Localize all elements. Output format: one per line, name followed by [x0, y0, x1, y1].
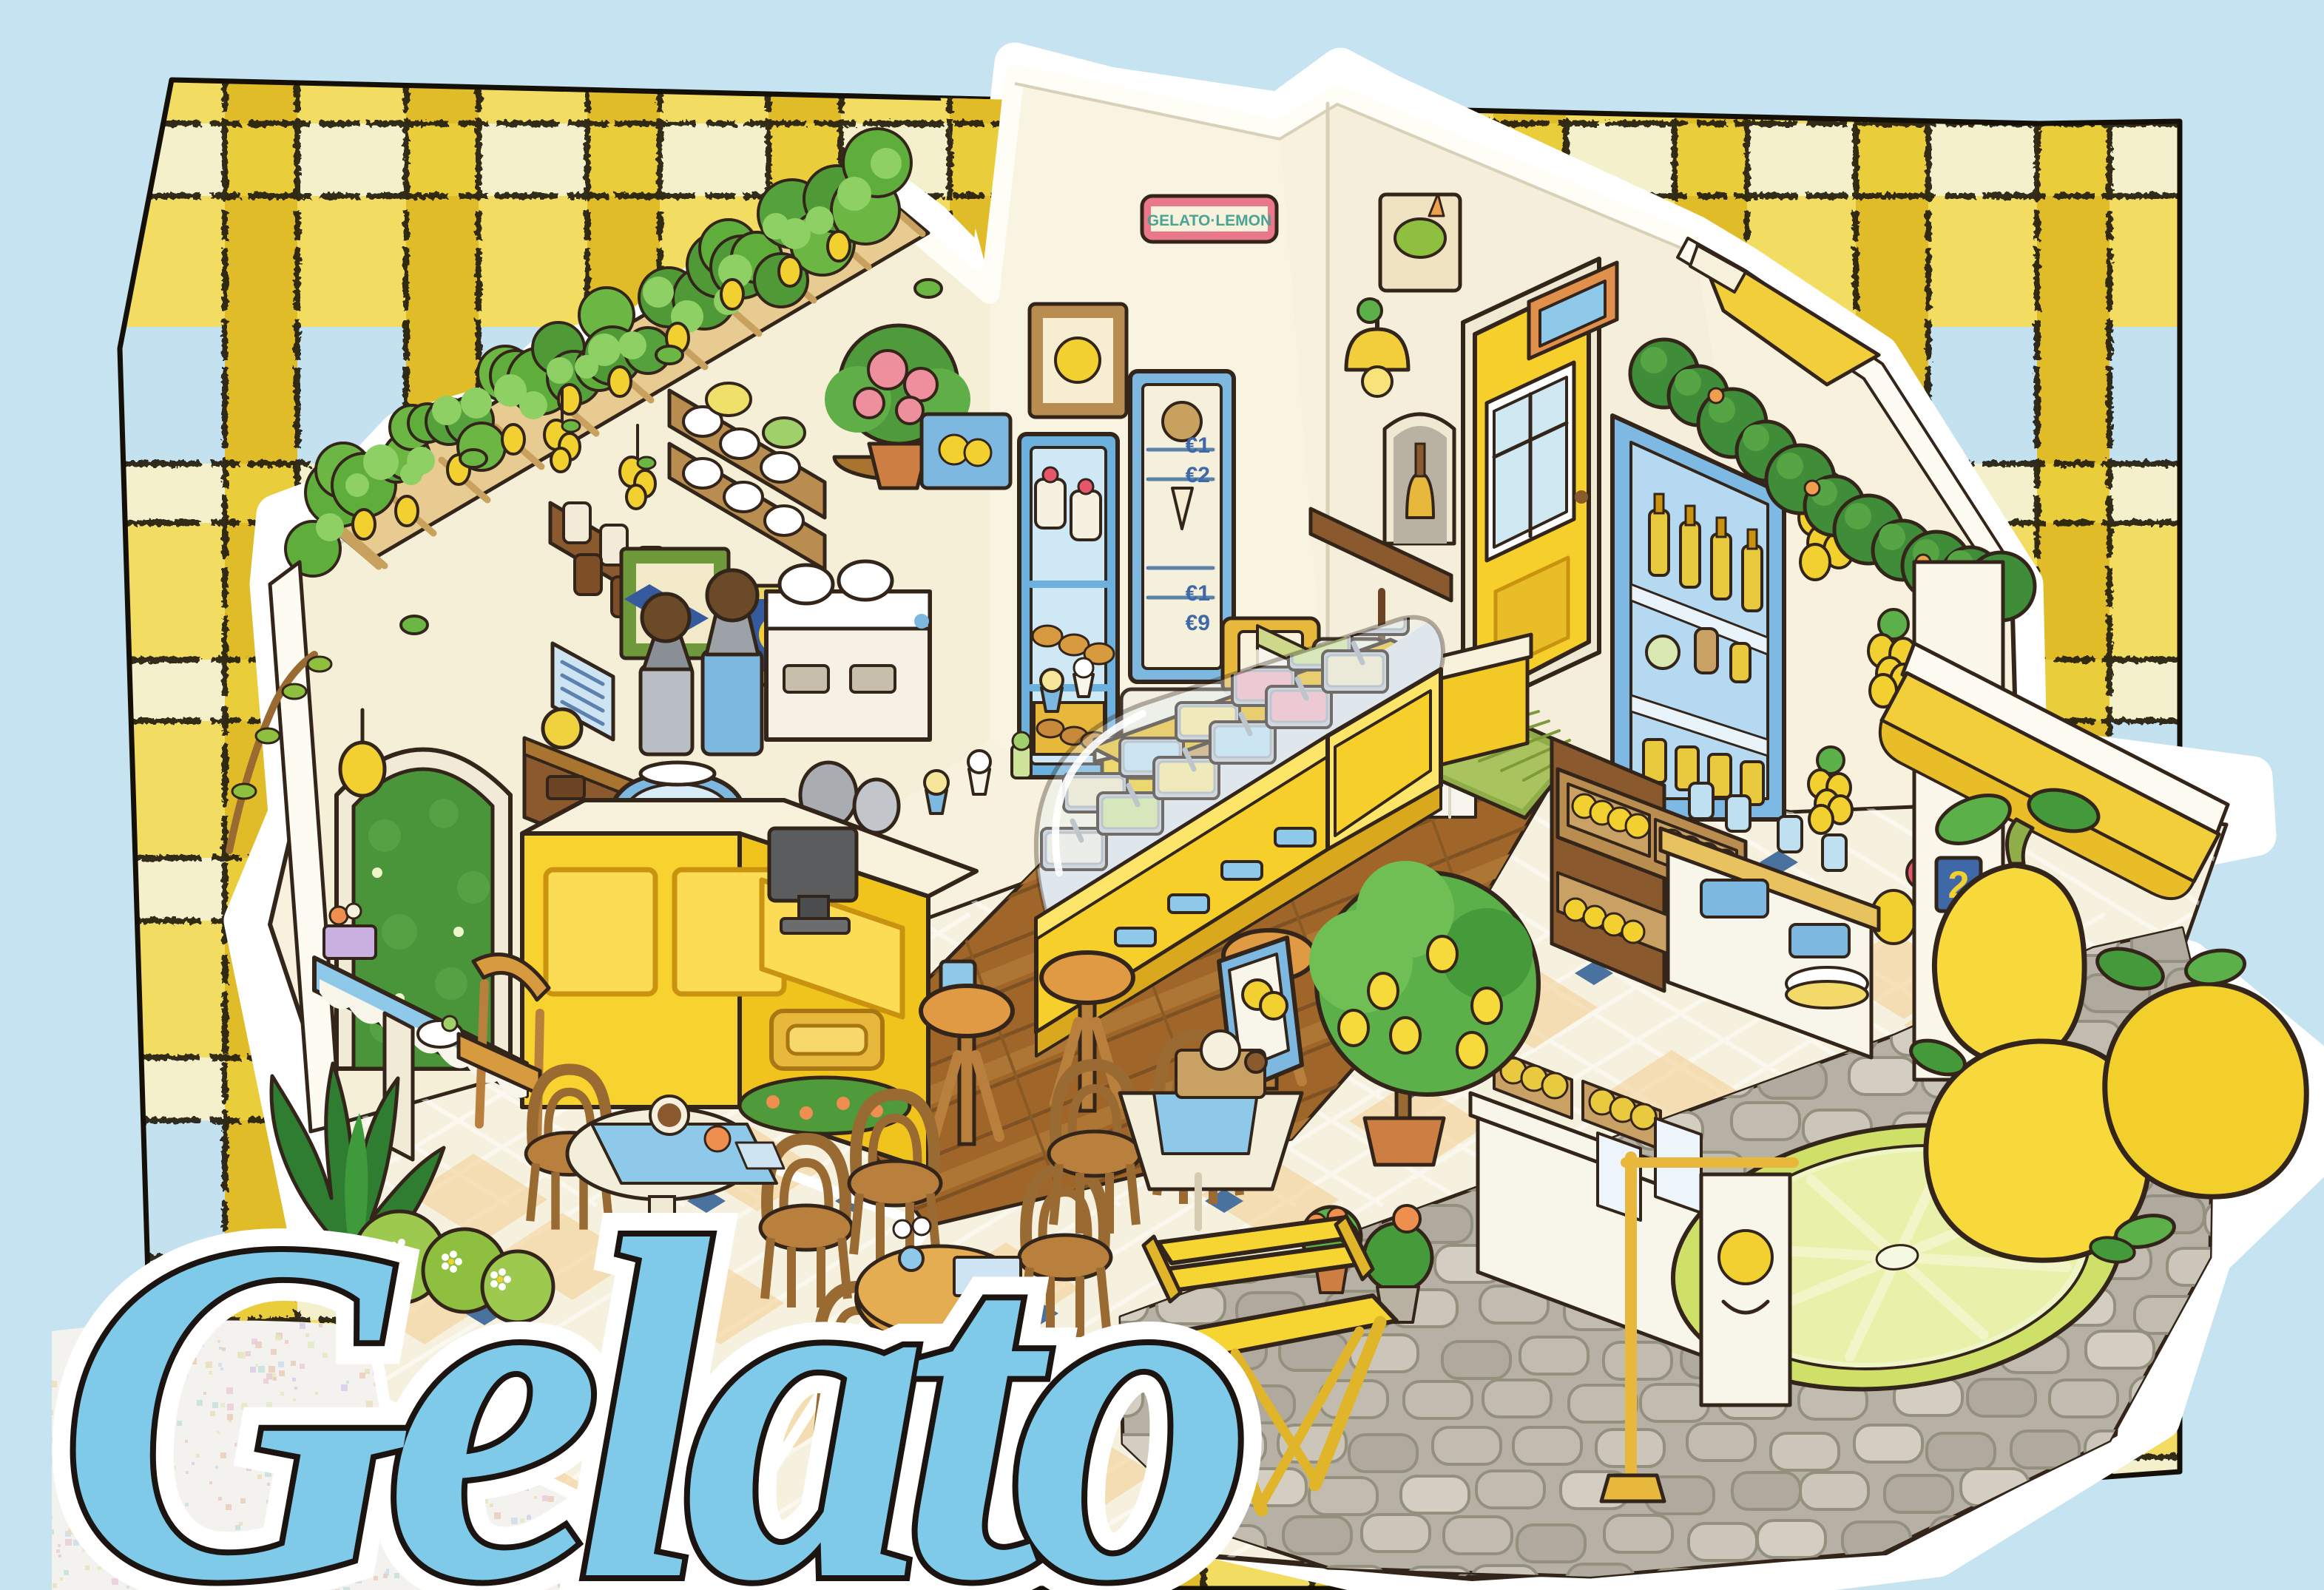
svg-text:€9: €9: [1186, 611, 1210, 635]
svg-text:€1: €1: [1186, 581, 1210, 606]
svg-text:Gelato: Gelato: [59, 1140, 1240, 1590]
svg-text:€1: €1: [1186, 433, 1210, 458]
svg-text:€2: €2: [1186, 463, 1210, 487]
svg-text:GELATO·LEMON: GELATO·LEMON: [1147, 212, 1271, 229]
